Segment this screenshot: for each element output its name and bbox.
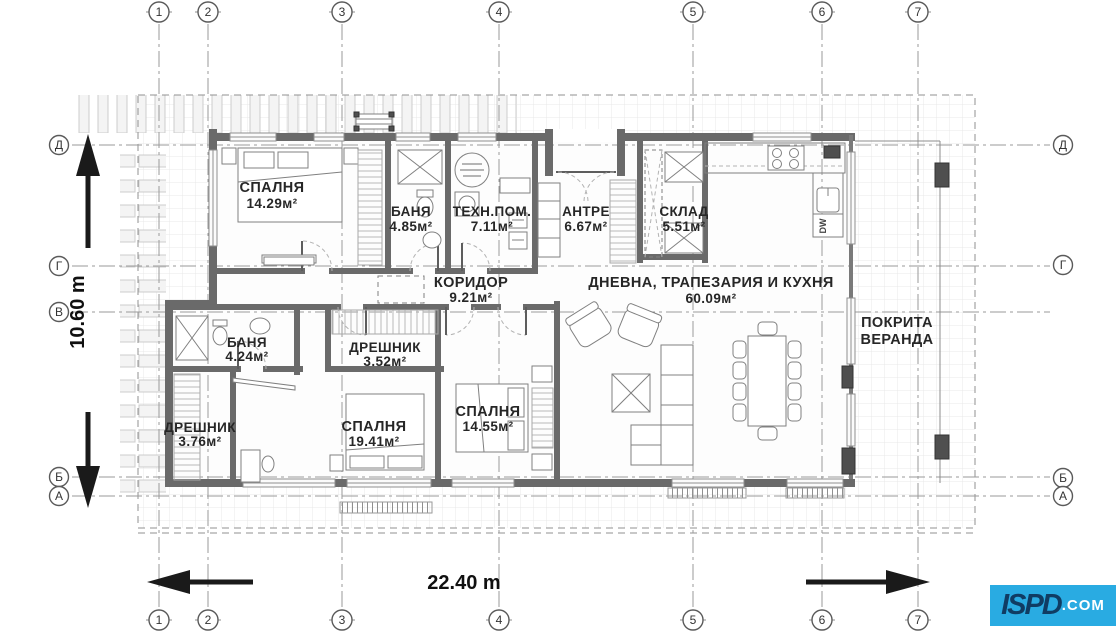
grid-col-label: 6 — [819, 5, 826, 19]
room-name-bath1: БАНЯ — [391, 204, 431, 219]
logo-tld-text: .COM — [1062, 597, 1105, 614]
grid-col-label: 4 — [496, 5, 503, 19]
ispd-logo[interactable]: ISPD .COM — [990, 585, 1116, 626]
grid-col-label: 7 — [915, 5, 922, 19]
grid-col-label: 5 — [690, 613, 697, 627]
horizontal-dimension-label: 22.40 m — [427, 572, 500, 594]
horizontal-dimension: 22.40 m — [147, 570, 930, 594]
room-name-storage: СКЛАД — [659, 204, 708, 219]
vertical-dimension-label: 10.60 m — [67, 275, 89, 348]
grid-row-label: В — [55, 305, 63, 319]
room-area-bedroom3: 14.55м² — [462, 419, 513, 434]
grid-col-label: 3 — [339, 613, 346, 627]
grid-row-label: Б — [55, 470, 63, 484]
room-name-bedroom1: СПАЛНЯ — [239, 180, 304, 196]
grid-col-label: 3 — [339, 5, 346, 19]
room-area-antre: 6.67м² — [564, 219, 607, 234]
room-area-bath2: 4.24м² — [225, 349, 268, 364]
room-area-bedroom2: 19.41м² — [348, 434, 399, 449]
room-area-bath1: 4.85м² — [389, 219, 432, 234]
grid-row-label: Д — [55, 138, 63, 152]
vertical-dimension: 10.60 m — [67, 134, 100, 508]
room-area-living: 60.09м² — [685, 291, 736, 306]
room-name-closet1: ДРЕШНИК — [349, 340, 421, 355]
veranda-label-line2: ВЕРАНДА — [860, 332, 933, 348]
room-name-tech: ТЕХН.ПОМ. — [453, 204, 532, 219]
dishwasher-label: DW — [818, 218, 828, 233]
closet1-furniture — [332, 310, 438, 334]
grid-bubbles-left: Д Г В Б А — [50, 136, 69, 506]
room-name-closet2: ДРЕШНИК — [164, 420, 236, 435]
grid-col-label: 1 — [156, 5, 163, 19]
grid-col-label: 4 — [496, 613, 503, 627]
grid-row-label: Д — [1059, 138, 1067, 152]
floor-plan-canvas: DW — [0, 0, 1120, 632]
grid-col-label: 5 — [690, 5, 697, 19]
grid-col-label: 2 — [205, 5, 212, 19]
grid-row-label: Г — [1060, 258, 1067, 272]
logo-brand-text: ISPD — [1001, 591, 1061, 620]
room-name-bath2: БАНЯ — [227, 335, 267, 350]
room-name-antre: АНТРЕ — [562, 204, 610, 219]
chimney — [354, 112, 394, 131]
grid-bubbles-right: Д Г Б А — [1054, 136, 1073, 506]
grid-col-label: 1 — [156, 613, 163, 627]
room-area-storage: 5.51м² — [662, 219, 705, 234]
grid-row-label: Б — [1059, 471, 1067, 485]
grid-col-label: 6 — [819, 613, 826, 627]
veranda-label-line1: ПОКРИТА — [861, 315, 933, 331]
grid-row-label: А — [55, 489, 63, 503]
grid-row-label: Г — [56, 259, 63, 273]
floor-plan-drawing: DW — [0, 0, 1120, 632]
room-area-closet1: 3.52м² — [363, 354, 406, 369]
room-area-closet2: 3.76м² — [178, 434, 221, 449]
grid-col-label: 2 — [205, 613, 212, 627]
grid-row-label: А — [1059, 489, 1067, 503]
room-area-bedroom1: 14.29м² — [246, 196, 297, 211]
room-area-tech: 7.11м² — [471, 219, 514, 234]
room-name-corridor: КОРИДОР — [434, 275, 508, 291]
room-area-corridor: 9.21м² — [449, 290, 492, 305]
grid-bubbles-top: 1 2 3 4 5 6 7 — [146, 2, 931, 22]
room-name-bedroom3: СПАЛНЯ — [455, 404, 520, 420]
grid-bubbles-bottom: 1 2 3 4 5 6 7 — [146, 610, 931, 630]
grid-col-label: 7 — [915, 613, 922, 627]
room-name-bedroom2: СПАЛНЯ — [341, 419, 406, 435]
room-name-living: ДНЕВНА, ТРАПЕЗАРИЯ И КУХНЯ — [588, 275, 833, 291]
